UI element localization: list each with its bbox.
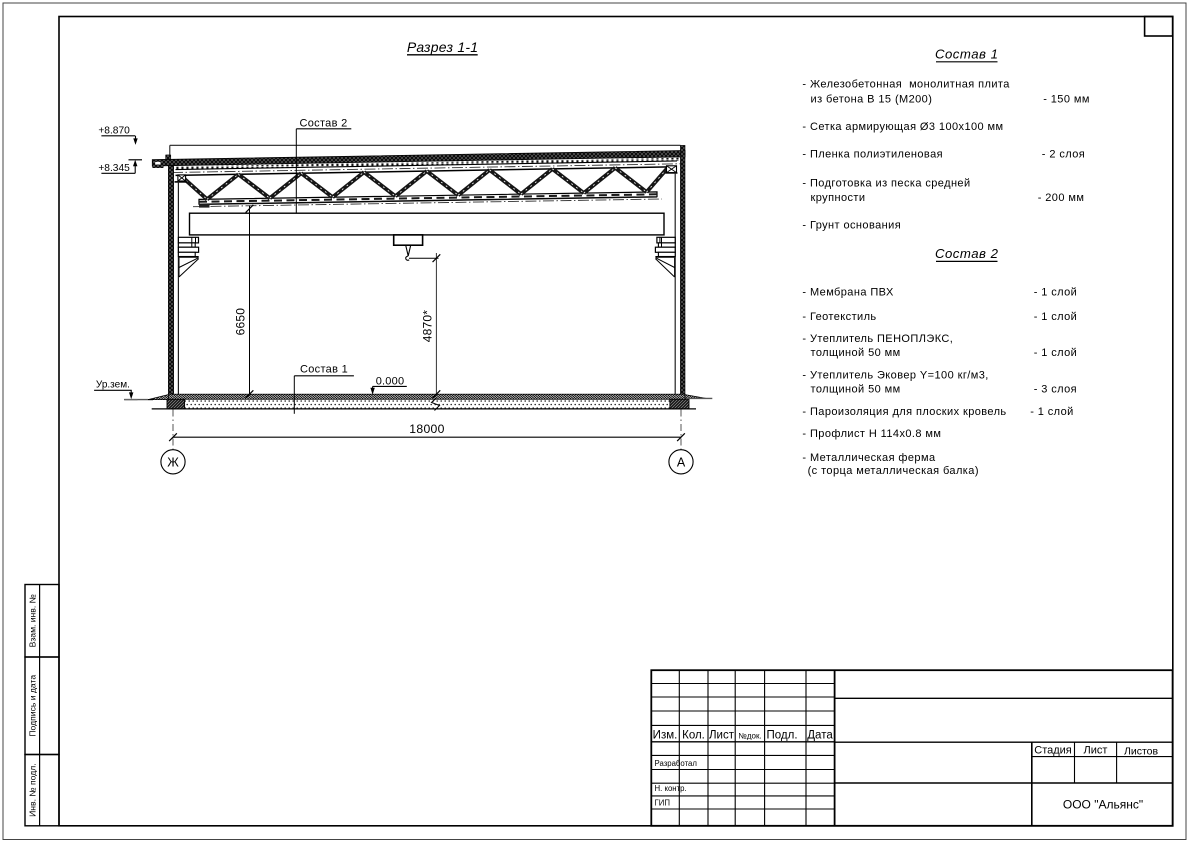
svg-text:- 1 слой: - 1 слой <box>1034 311 1078 323</box>
svg-text:- Грунт основания: - Грунт основания <box>802 220 901 232</box>
svg-text:- 1 слой: - 1 слой <box>1034 347 1078 359</box>
svg-text:- Утеплитель Эковер Y=100 кг/м: - Утеплитель Эковер Y=100 кг/м3, <box>802 370 988 382</box>
svg-text:А: А <box>677 455 686 469</box>
svg-text:Состав 1: Состав 1 <box>935 47 999 62</box>
svg-text:(с торца металлическая балка): (с торца металлическая балка) <box>808 465 979 477</box>
svg-text:крупности: крупности <box>811 192 866 204</box>
svg-text:Состав 1: Состав 1 <box>300 363 348 375</box>
svg-text:Листов: Листов <box>1124 746 1159 758</box>
svg-text:Ур.зем.: Ур.зем. <box>96 380 130 391</box>
svg-text:Инв. № подл.: Инв. № подл. <box>28 763 38 817</box>
svg-text:Разрез 1-1: Разрез 1-1 <box>407 39 478 55</box>
svg-text:0.000: 0.000 <box>376 375 405 387</box>
svg-text:Н. контр.: Н. контр. <box>655 784 687 793</box>
svg-text:ГИП: ГИП <box>655 799 670 808</box>
svg-text:- Сетка армирующая Ø3 100х100: - Сетка армирующая Ø3 100х100 мм <box>802 121 1003 133</box>
svg-text:- Пароизоляция для плоских кро: - Пароизоляция для плоских кровель <box>802 406 1006 418</box>
svg-text:- Мембрана ПВХ: - Мембрана ПВХ <box>802 287 894 299</box>
svg-text:толщиной 50 мм: толщиной 50 мм <box>811 347 901 359</box>
svg-text:Стадия: Стадия <box>1034 745 1072 757</box>
svg-text:Разработал: Разработал <box>655 759 698 768</box>
svg-text:- Железобетонная монолитная п: - Железобетонная монолитная плита <box>802 79 1010 91</box>
svg-text:Дата: Дата <box>807 730 833 742</box>
svg-text:толщиной 50 мм: толщиной 50 мм <box>811 383 901 395</box>
svg-text:- 3 слоя: - 3 слоя <box>1034 383 1077 395</box>
svg-text:из бетона В 15 (М200): из бетона В 15 (М200) <box>811 93 933 105</box>
svg-text:Состав 2: Состав 2 <box>299 117 347 129</box>
svg-text:18000: 18000 <box>409 422 444 436</box>
svg-text:- 150 мм: - 150 мм <box>1043 93 1090 105</box>
svg-text:- 1 слой: - 1 слой <box>1034 287 1078 299</box>
svg-text:Лист: Лист <box>709 730 735 742</box>
svg-text:- Подготовка из песка средней: - Подготовка из песка средней <box>802 177 970 189</box>
svg-text:Подл.: Подл. <box>766 730 797 742</box>
svg-text:- Профлист Н 114х0.8 мм: - Профлист Н 114х0.8 мм <box>802 428 941 440</box>
svg-text:Взам. инв. №: Взам. инв. № <box>28 594 38 647</box>
svg-text:Подпись и дата: Подпись и дата <box>28 675 38 737</box>
svg-text:- 1 слой: - 1 слой <box>1030 406 1074 418</box>
svg-text:№док.: №док. <box>738 732 761 741</box>
svg-text:+8.345: +8.345 <box>98 163 130 174</box>
svg-text:Состав 2: Состав 2 <box>935 246 999 261</box>
svg-text:Ж: Ж <box>167 455 179 469</box>
svg-text:- 200 мм: - 200 мм <box>1038 192 1085 204</box>
svg-text:- Металлическая ферма: - Металлическая ферма <box>802 452 936 464</box>
svg-text:4870*: 4870* <box>421 310 435 342</box>
svg-text:Изм.: Изм. <box>653 730 678 742</box>
svg-text:- Геотекстиль: - Геотекстиль <box>802 311 876 323</box>
svg-text:6650: 6650 <box>234 308 248 336</box>
svg-text:- Пленка полиэтиленовая: - Пленка полиэтиленовая <box>802 148 943 160</box>
svg-text:+8.870: +8.870 <box>98 126 130 137</box>
svg-text:- 2 слоя: - 2 слоя <box>1042 148 1085 160</box>
svg-text:- Утеплитель ПЕНОПЛЭКС,: - Утеплитель ПЕНОПЛЭКС, <box>802 333 953 345</box>
svg-text:ООО "Альянс": ООО "Альянс" <box>1063 798 1143 812</box>
svg-text:Лист: Лист <box>1084 745 1108 757</box>
svg-text:Кол.: Кол. <box>682 730 705 742</box>
